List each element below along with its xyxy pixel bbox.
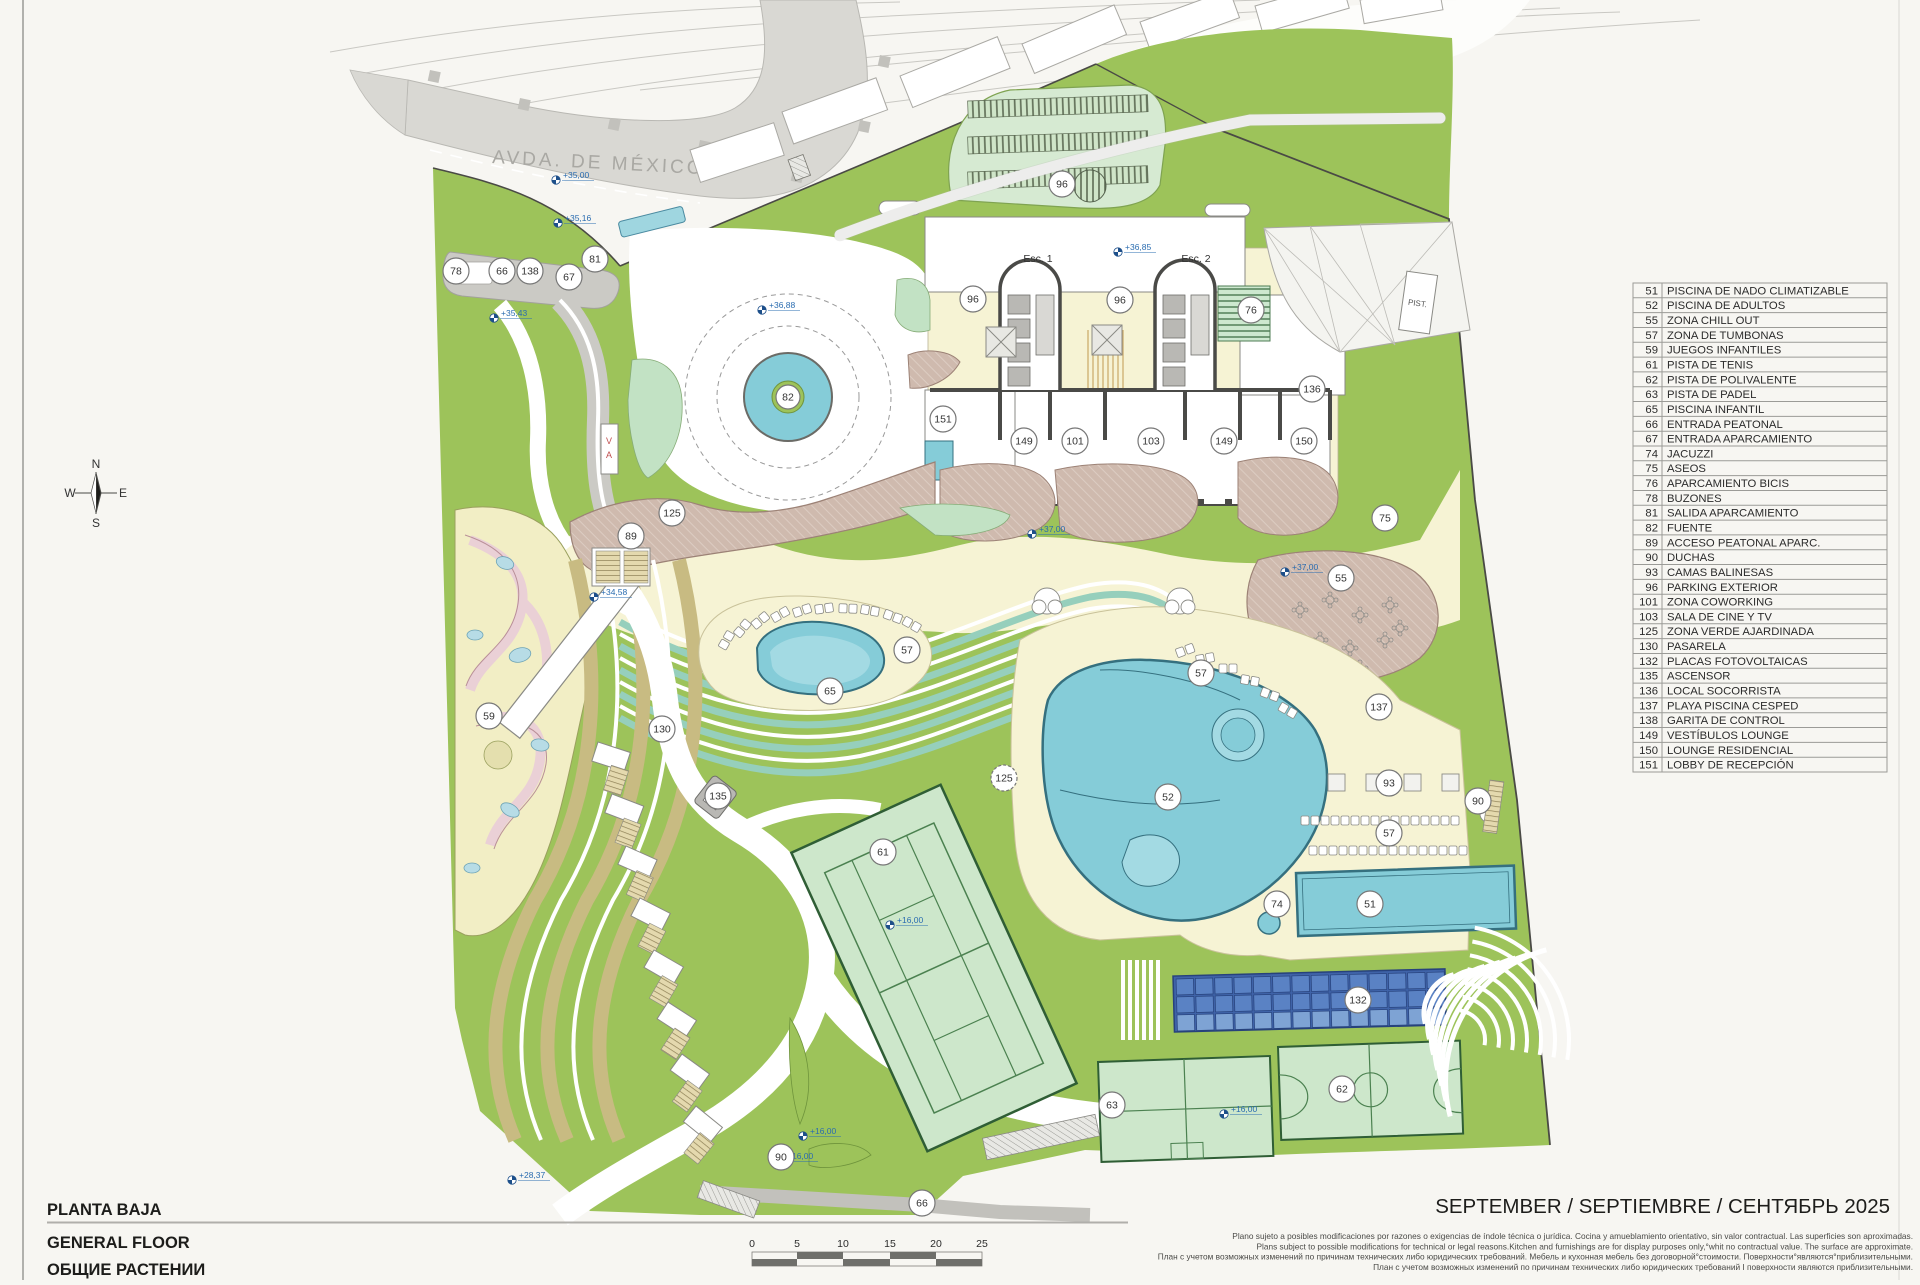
svg-text:57: 57: [901, 645, 913, 657]
svg-text:SEPTEMBER / SEPTIEMBRE / СЕНТЯ: SEPTEMBER / SEPTIEMBRE / СЕНТЯБРЬ 2025: [1435, 1195, 1890, 1218]
svg-text:138: 138: [1639, 715, 1658, 727]
svg-text:Esc. 2: Esc. 2: [1181, 253, 1210, 265]
svg-text:93: 93: [1645, 567, 1658, 579]
svg-text:PISCINA DE NADO CLIMATIZABLE: PISCINA DE NADO CLIMATIZABLE: [1667, 285, 1849, 297]
svg-text:PISTA DE POLIVALENTE: PISTA DE POLIVALENTE: [1667, 374, 1797, 386]
svg-text:План с учетом возможных измене: План с учетом возможных изменений по при…: [1373, 1262, 1913, 1272]
svg-text:JUEGOS INFANTILES: JUEGOS INFANTILES: [1667, 345, 1782, 357]
svg-text:138: 138: [521, 266, 539, 278]
svg-text:APARCAMIENTO BICIS: APARCAMIENTO BICIS: [1667, 478, 1789, 490]
svg-text:135: 135: [1639, 671, 1658, 683]
svg-text:57: 57: [1383, 828, 1395, 840]
svg-text:PLANTA BAJA: PLANTA BAJA: [47, 1201, 162, 1219]
svg-text:+35,00: +35,00: [563, 170, 590, 180]
svg-text:W: W: [64, 486, 76, 500]
svg-text:Esc. 1: Esc. 1: [1023, 253, 1052, 265]
svg-text:149: 149: [1015, 436, 1033, 448]
svg-text:76: 76: [1245, 305, 1257, 317]
svg-text:0: 0: [749, 1238, 755, 1250]
svg-text:20: 20: [930, 1238, 942, 1250]
svg-text:90: 90: [1645, 552, 1658, 564]
svg-text:89: 89: [1645, 537, 1658, 549]
svg-text:67: 67: [563, 272, 575, 284]
svg-text:LOBBY DE RECEPCIÓN: LOBBY DE RECEPCIÓN: [1667, 759, 1794, 772]
svg-text:75: 75: [1645, 463, 1658, 475]
svg-text:ZONA COWORKING: ZONA COWORKING: [1667, 597, 1773, 609]
svg-text:GENERAL FLOOR: GENERAL FLOOR: [47, 1234, 190, 1252]
svg-text:52: 52: [1162, 792, 1174, 804]
svg-text:136: 136: [1639, 686, 1658, 698]
svg-text:E: E: [119, 486, 127, 500]
svg-text:132: 132: [1639, 656, 1658, 668]
svg-text:ENTRADA APARCAMIENTO: ENTRADA APARCAMIENTO: [1667, 434, 1812, 446]
svg-text:5: 5: [794, 1238, 800, 1250]
svg-text:Plano sujeto a posibles modifi: Plano sujeto a posibles modificaciones p…: [1232, 1231, 1913, 1241]
svg-text:62: 62: [1336, 1084, 1348, 1096]
svg-text:149: 149: [1639, 730, 1658, 742]
svg-text:SALIDA APARCAMIENTO: SALIDA APARCAMIENTO: [1667, 508, 1799, 520]
svg-text:63: 63: [1106, 1100, 1118, 1112]
svg-text:132: 132: [1349, 995, 1367, 1007]
svg-text:59: 59: [1645, 345, 1658, 357]
svg-text:150: 150: [1639, 745, 1658, 757]
svg-text:Plans subject to possible modi: Plans subject to possible modifications …: [1256, 1241, 1913, 1251]
svg-text:135: 135: [709, 791, 727, 803]
svg-text:78: 78: [1645, 493, 1658, 505]
svg-text:PISCINA DE ADULTOS: PISCINA DE ADULTOS: [1667, 300, 1786, 312]
svg-text:90: 90: [775, 1152, 787, 1164]
svg-text:+35,43: +35,43: [501, 308, 528, 318]
svg-text:136: 136: [1303, 384, 1321, 396]
svg-text:JACUZZI: JACUZZI: [1667, 448, 1713, 460]
svg-text:GARITA DE CONTROL: GARITA DE CONTROL: [1667, 715, 1785, 727]
svg-text:ZONA DE TUMBONAS: ZONA DE TUMBONAS: [1667, 330, 1784, 342]
svg-text:52: 52: [1645, 300, 1658, 312]
svg-text:130: 130: [653, 724, 671, 736]
svg-text:63: 63: [1645, 389, 1658, 401]
svg-text:66: 66: [496, 266, 508, 278]
svg-text:67: 67: [1645, 434, 1658, 446]
svg-text:51: 51: [1364, 899, 1376, 911]
svg-text:+35,16: +35,16: [565, 213, 592, 223]
svg-text:59: 59: [483, 711, 495, 723]
svg-text:96: 96: [1114, 295, 1126, 307]
svg-text:82: 82: [1645, 523, 1658, 535]
svg-text:51: 51: [1645, 285, 1658, 297]
svg-text:81: 81: [1645, 508, 1658, 520]
svg-text:90: 90: [1472, 796, 1484, 808]
svg-text:96: 96: [1056, 179, 1068, 191]
svg-text:ZONA VERDE AJARDINADA: ZONA VERDE AJARDINADA: [1667, 626, 1814, 638]
svg-text:S: S: [92, 516, 100, 530]
svg-text:LOCAL SOCORRISTA: LOCAL SOCORRISTA: [1667, 686, 1781, 698]
svg-text:61: 61: [1645, 360, 1658, 372]
svg-text:A: A: [606, 450, 612, 460]
svg-text:65: 65: [1645, 404, 1658, 416]
svg-text:55: 55: [1335, 573, 1347, 585]
svg-text:101: 101: [1639, 597, 1658, 609]
svg-text:ОБЩИЕ РАСТЕНИИ: ОБЩИЕ РАСТЕНИИ: [47, 1261, 205, 1279]
svg-text:25: 25: [976, 1238, 988, 1250]
svg-text:66: 66: [916, 1198, 928, 1210]
svg-text:План с учетом возможных измене: План с учетом возможных изменений по при…: [1158, 1252, 1913, 1262]
svg-text:+16,00: +16,00: [897, 915, 924, 925]
svg-text:DUCHAS: DUCHAS: [1667, 552, 1715, 564]
svg-text:SALA DE CINE Y TV: SALA DE CINE Y TV: [1667, 611, 1772, 623]
svg-text:125: 125: [1639, 626, 1658, 638]
svg-text:78: 78: [450, 266, 462, 278]
svg-text:LOUNGE RESIDENCIAL: LOUNGE RESIDENCIAL: [1667, 745, 1793, 757]
svg-text:ZONA CHILL OUT: ZONA CHILL OUT: [1667, 315, 1760, 327]
svg-text:82: 82: [782, 392, 794, 404]
svg-text:57: 57: [1645, 330, 1658, 342]
svg-text:+28,37: +28,37: [519, 1170, 546, 1180]
svg-text:+36,85: +36,85: [1125, 242, 1152, 252]
svg-text:CAMAS BALINESAS: CAMAS BALINESAS: [1667, 567, 1774, 579]
svg-text:125: 125: [995, 773, 1013, 785]
svg-text:96: 96: [967, 294, 979, 306]
svg-text:89: 89: [625, 531, 637, 543]
svg-text:+16,00: +16,00: [1231, 1104, 1258, 1114]
svg-text:61: 61: [877, 847, 889, 859]
svg-text:PLACAS FOTOVOLTAICAS: PLACAS FOTOVOLTAICAS: [1667, 656, 1808, 668]
svg-text:137: 137: [1370, 702, 1388, 714]
svg-text:66: 66: [1645, 419, 1658, 431]
svg-text:103: 103: [1639, 611, 1658, 623]
svg-text:PISCINA INFANTIL: PISCINA INFANTIL: [1667, 404, 1764, 416]
svg-text:137: 137: [1639, 700, 1658, 712]
svg-text:PARKING EXTERIOR: PARKING EXTERIOR: [1667, 582, 1778, 594]
svg-text:81: 81: [589, 254, 601, 266]
svg-text:74: 74: [1645, 448, 1658, 460]
svg-text:ACCESO PEATONAL APARC.: ACCESO PEATONAL APARC.: [1667, 537, 1820, 549]
svg-text:76: 76: [1645, 478, 1658, 490]
svg-text:ENTRADA PEATONAL: ENTRADA PEATONAL: [1667, 419, 1783, 431]
svg-text:57: 57: [1195, 668, 1207, 680]
svg-text:10: 10: [837, 1238, 849, 1250]
svg-text:151: 151: [1639, 760, 1658, 772]
svg-text:VESTÍBULOS LOUNGE: VESTÍBULOS LOUNGE: [1667, 729, 1789, 742]
svg-text:BUZONES: BUZONES: [1667, 493, 1722, 505]
svg-text:150: 150: [1295, 436, 1313, 448]
svg-text:96: 96: [1645, 582, 1658, 594]
svg-text:+37,00: +37,00: [1292, 562, 1319, 572]
svg-text:PISTA DE TENIS: PISTA DE TENIS: [1667, 360, 1754, 372]
svg-text:+34,58: +34,58: [601, 587, 628, 597]
svg-text:N: N: [92, 457, 101, 471]
svg-text:149: 149: [1215, 436, 1233, 448]
svg-text:93: 93: [1383, 778, 1395, 790]
svg-text:+36,88: +36,88: [769, 300, 796, 310]
svg-text:PASARELA: PASARELA: [1667, 641, 1726, 653]
svg-text:FUENTE: FUENTE: [1667, 523, 1713, 535]
svg-text:55: 55: [1645, 315, 1658, 327]
svg-text:74: 74: [1271, 899, 1283, 911]
svg-text:103: 103: [1142, 436, 1160, 448]
svg-text:151: 151: [934, 414, 952, 426]
svg-text:V: V: [606, 436, 612, 446]
svg-text:125: 125: [663, 508, 681, 520]
svg-text:75: 75: [1379, 513, 1391, 525]
svg-text:101: 101: [1066, 436, 1084, 448]
svg-text:ASEOS: ASEOS: [1667, 463, 1706, 475]
svg-text:PISTA DE PADEL: PISTA DE PADEL: [1667, 389, 1756, 401]
svg-text:62: 62: [1645, 374, 1658, 386]
svg-text:+37,00: +37,00: [1039, 524, 1066, 534]
svg-text:15: 15: [884, 1238, 896, 1250]
svg-text:+16,00: +16,00: [810, 1126, 837, 1136]
svg-text:65: 65: [824, 686, 836, 698]
svg-text:130: 130: [1639, 641, 1658, 653]
svg-text:ASCENSOR: ASCENSOR: [1667, 671, 1730, 683]
svg-text:PLAYA PISCINA CESPED: PLAYA PISCINA CESPED: [1667, 700, 1798, 712]
